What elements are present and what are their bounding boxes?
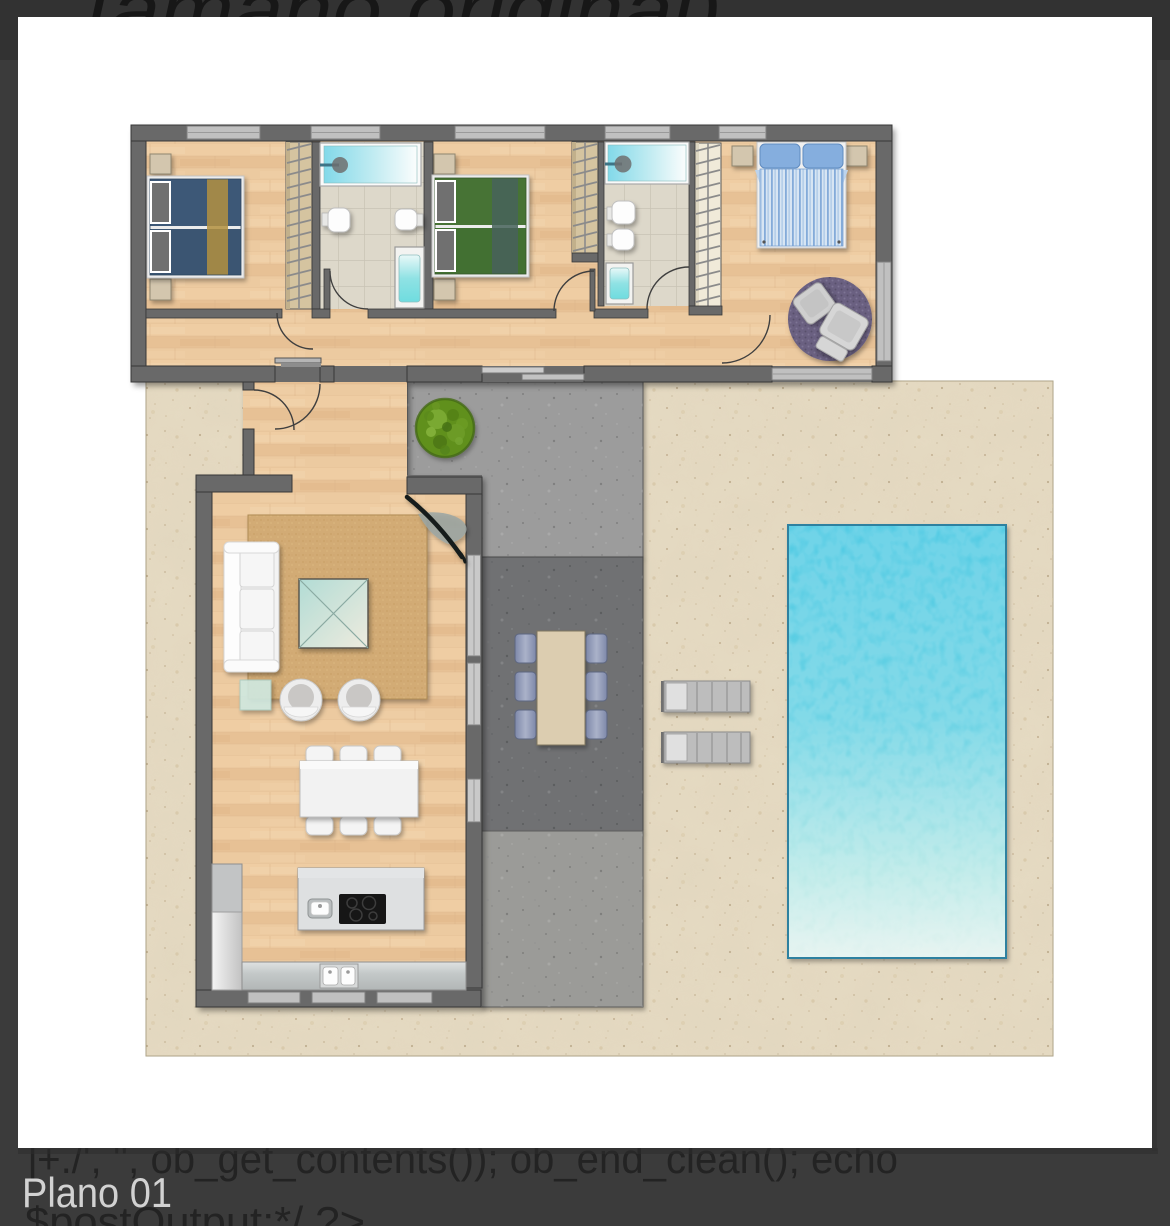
svg-text:Plano 01: Plano 01 xyxy=(22,1169,172,1216)
